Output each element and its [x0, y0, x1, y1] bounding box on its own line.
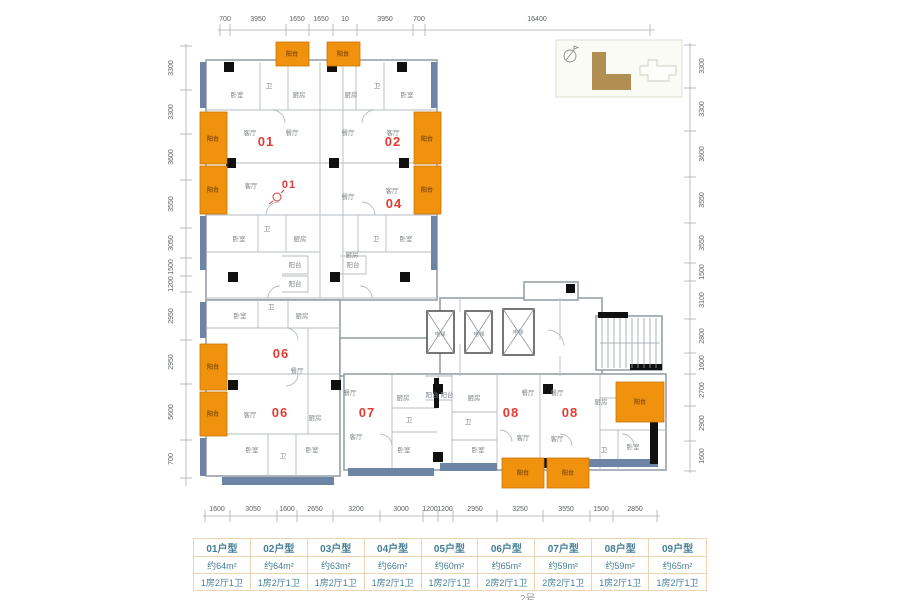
unit-layout: 1房2厅1卫	[365, 574, 422, 590]
unit-number: 08	[503, 405, 519, 420]
dim-value: 3950	[377, 16, 393, 23]
room-label: 卧室	[306, 445, 320, 454]
dim-value: 3300	[168, 60, 175, 76]
room-label: 卧室	[246, 445, 260, 454]
dim-value: 3600	[699, 146, 706, 162]
balcony-label: 阳台	[421, 186, 433, 194]
unit-layout: 2房2厅1卫	[478, 574, 535, 590]
dim-value: 1200	[437, 506, 453, 513]
room-label: 卧室	[233, 234, 247, 243]
dim-value: 3100	[699, 292, 706, 308]
unit-layout: 2房2厅1卫	[535, 574, 592, 590]
dim-value: 1600	[699, 448, 706, 464]
room-label: 餐厅	[291, 366, 305, 375]
room-label: 厨房	[346, 250, 359, 259]
room-label: 餐厅	[342, 192, 356, 201]
room-label: 阳台	[441, 390, 454, 399]
dim-value: 3600	[168, 149, 175, 165]
balcony-label: 阳台	[207, 135, 219, 143]
elevator-label: 电梯	[473, 330, 485, 338]
unit-layout: 1房2厅1卫	[649, 574, 706, 590]
dim-value: 2950	[168, 308, 175, 324]
dim-value: 2650	[307, 506, 323, 513]
unit-number: 02	[385, 134, 401, 149]
room-label: 阳台	[289, 279, 302, 288]
elevator-label: 电梯	[512, 328, 524, 336]
dim-value: 3550	[168, 196, 175, 212]
balcony-label: 阳台	[421, 135, 433, 143]
room-label: 客厅	[517, 433, 531, 442]
room-label: 餐厅	[522, 388, 536, 397]
unit-type-header: 06户型	[478, 539, 535, 557]
shear-wall	[200, 216, 206, 270]
floorplan-svg: 7003950165016501039507001640016003050160…	[0, 0, 900, 600]
unit-layout: 1房2厅1卫	[308, 574, 365, 590]
shear-wall	[200, 302, 206, 338]
room-label: 卫	[268, 303, 275, 311]
dim-value: 16400	[527, 16, 547, 23]
room-label: 卫	[264, 225, 271, 233]
unit-layout: 1房2厅1卫	[422, 574, 479, 590]
room-label: 卧室	[231, 90, 245, 99]
room-label: 卫	[266, 82, 273, 90]
dim-value: 1600	[279, 506, 295, 513]
dim-value: 3050	[245, 506, 261, 513]
room-label: 卫	[280, 452, 287, 460]
room-label: 阳台	[289, 260, 302, 269]
room-label: 卧室	[400, 234, 414, 243]
unit-layout: 1房2厅1卫	[251, 574, 308, 590]
unit-number: 06	[272, 405, 288, 420]
unit-type-header: 03户型	[308, 539, 365, 557]
unit-area: 约59m²	[535, 557, 592, 574]
dim-value: 3000	[393, 506, 409, 513]
unit-number: 01	[282, 179, 296, 191]
dim-value: 3550	[558, 506, 574, 513]
balcony-label: 阳台	[517, 469, 529, 477]
room-label: 卫	[601, 446, 608, 454]
dim-value: 1600	[699, 355, 706, 371]
room-label: 卫	[465, 418, 472, 426]
unit-area: 约65m²	[478, 557, 535, 574]
room-label: 卧室	[398, 445, 412, 454]
unit-number: 08	[562, 405, 578, 420]
room-label: 客厅	[244, 410, 258, 419]
dim-value: 3250	[512, 506, 528, 513]
room-label: 餐厅	[344, 388, 358, 397]
room-label: 卧室	[234, 311, 248, 320]
dim-value: 1200	[422, 506, 438, 513]
room-label: 阳台	[347, 260, 360, 269]
elevator-label: 电梯	[434, 330, 446, 338]
unit-area: 约60m²	[422, 557, 479, 574]
unit-area: 约65m²	[649, 557, 706, 574]
balcony-label: 阳台	[207, 186, 219, 194]
room-label: 卧室	[472, 445, 486, 454]
shear-wall	[431, 216, 437, 270]
unit-type-header: 09户型	[649, 539, 706, 557]
unit-number: 07	[359, 405, 375, 420]
dim-value: 3300	[168, 104, 175, 120]
unit-number: 04	[386, 196, 402, 211]
room-label: 卫	[373, 235, 380, 243]
room-label: 阳台	[426, 390, 439, 399]
dim-value: 1500	[699, 264, 706, 280]
dim-value: 1600	[209, 506, 225, 513]
room-label: 餐厅	[551, 388, 565, 397]
room-label: 卫	[406, 416, 413, 424]
dim-value: 3550	[699, 192, 706, 208]
unit-area: 约64m²	[251, 557, 308, 574]
shear-wall	[200, 62, 206, 108]
balcony-label: 阳台	[562, 469, 574, 477]
shear-wall	[348, 468, 434, 476]
shear-wall	[222, 477, 334, 485]
dim-value: 2850	[627, 506, 643, 513]
unit-number: 06	[273, 346, 289, 361]
dim-value: 3050	[168, 235, 175, 251]
balcony-label: 阳台	[207, 410, 219, 418]
dim-value: 1500	[168, 259, 175, 275]
shear-wall	[431, 62, 437, 108]
dim-value: 1500	[593, 506, 609, 513]
unit-type-table: 01户型02户型03户型04户型05户型06户型07户型08户型09户型约64m…	[193, 538, 707, 591]
dim-value: 5600	[168, 404, 175, 420]
unit-type-header: 04户型	[365, 539, 422, 557]
room-label: 卫	[374, 82, 381, 90]
unit-area: 约63m²	[308, 557, 365, 574]
dim-value: 700	[219, 16, 231, 23]
room-label: 厨房	[397, 393, 410, 402]
unit-area: 约59m²	[592, 557, 649, 574]
room-label: 厨房	[293, 90, 306, 99]
unit-type-header: 01户型	[194, 539, 251, 557]
room-label: 客厅	[386, 186, 400, 195]
unit-type-header: 07户型	[535, 539, 592, 557]
balcony-label: 阳台	[634, 398, 646, 406]
shear-wall	[588, 459, 658, 467]
room-label: 餐厅	[286, 128, 300, 137]
shear-wall	[440, 463, 497, 471]
building-number-label: 2号	[520, 590, 536, 600]
unit-type-header: 05户型	[422, 539, 479, 557]
room-label: 客厅	[551, 434, 565, 443]
dim-value: 700	[168, 453, 175, 465]
room-label: 客厅	[350, 432, 364, 441]
unit-area: 约64m²	[194, 557, 251, 574]
room-label: 厨房	[294, 234, 307, 243]
balcony-label: 阳台	[207, 363, 219, 371]
room-label: 客厅	[244, 128, 258, 137]
unit-layout: 1房2厅1卫	[592, 574, 649, 590]
dim-value: 3200	[348, 506, 364, 513]
room-label: 厨房	[345, 90, 358, 99]
room-label: 卧室	[627, 442, 641, 451]
unit-area: 约66m²	[365, 557, 422, 574]
dim-value: 3550	[699, 235, 706, 251]
dim-value: 2900	[699, 415, 706, 431]
unit-type-header: 02户型	[251, 539, 308, 557]
room-label: 客厅	[245, 181, 259, 190]
dim-value: 10	[341, 16, 349, 23]
room-label: 餐厅	[342, 128, 356, 137]
unit-number: 01	[258, 134, 274, 149]
unit-layout: 1房2厅1卫	[194, 574, 251, 590]
dim-value: 2700	[699, 382, 706, 398]
dim-value: 3950	[250, 16, 266, 23]
balcony-label: 阳台	[286, 50, 298, 58]
dim-value: 1650	[289, 16, 305, 23]
dim-value: 2950	[168, 354, 175, 370]
room-label: 厨房	[296, 311, 309, 320]
dim-value: 3300	[699, 101, 706, 117]
balcony-label: 阳台	[337, 50, 349, 58]
floorplan-page: 7003950165016501039507001640016003050160…	[0, 0, 900, 600]
dim-value: 700	[413, 16, 425, 23]
room-label: 卧室	[401, 90, 415, 99]
room-label: 厨房	[468, 393, 481, 402]
room-label: 厨房	[309, 413, 322, 422]
shear-wall	[200, 438, 206, 476]
unit-type-header: 08户型	[592, 539, 649, 557]
room-label: 厨房	[595, 397, 608, 406]
dim-value: 2800	[699, 328, 706, 344]
site-inset	[556, 40, 682, 97]
dim-value: 1650	[313, 16, 329, 23]
dim-value: 1200	[168, 276, 175, 292]
dim-value: 3300	[699, 58, 706, 74]
dim-value: 2950	[467, 506, 483, 513]
